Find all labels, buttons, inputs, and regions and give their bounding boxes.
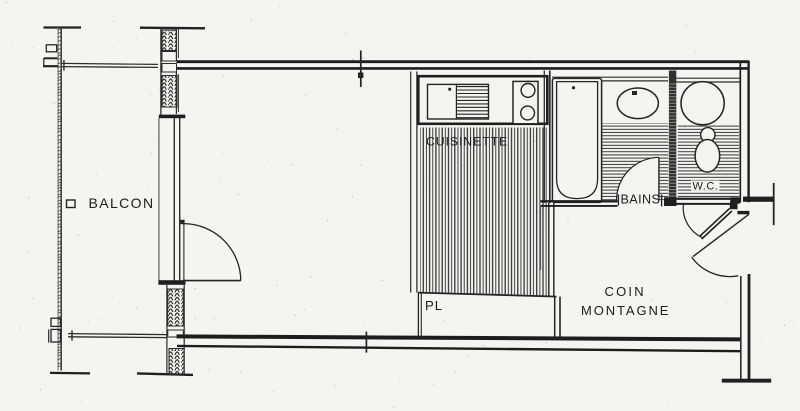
svg-text:BAINS: BAINS	[621, 193, 661, 207]
svg-text:W.C.: W.C.	[693, 180, 719, 192]
svg-text:CUISINETTE: CUISINETTE	[426, 134, 508, 148]
svg-text:BALCON: BALCON	[89, 195, 155, 211]
svg-text:COIN: COIN	[605, 284, 646, 299]
svg-text:MONTAGNE: MONTAGNE	[581, 303, 670, 318]
svg-text:PL: PL	[425, 298, 443, 313]
